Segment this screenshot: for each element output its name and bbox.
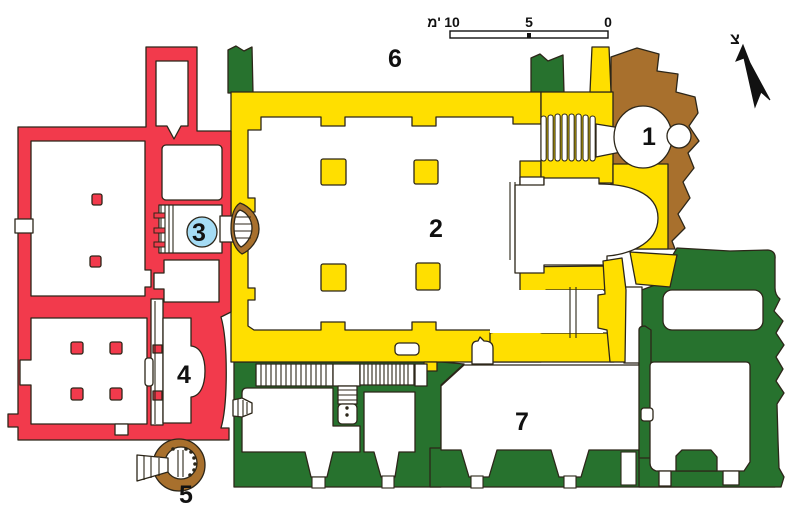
svg-text:7: 7 bbox=[515, 408, 529, 436]
svg-text:מ': מ' bbox=[427, 14, 441, 30]
svg-text:2: 2 bbox=[429, 215, 443, 243]
svg-text:5: 5 bbox=[179, 481, 193, 509]
svg-text:צ: צ bbox=[730, 31, 740, 48]
svg-text:6: 6 bbox=[388, 45, 402, 73]
svg-text:0: 0 bbox=[604, 14, 612, 30]
svg-text:5: 5 bbox=[525, 14, 533, 30]
svg-text:4: 4 bbox=[177, 361, 191, 389]
svg-text:1: 1 bbox=[642, 123, 656, 151]
svg-text:10: 10 bbox=[444, 14, 460, 30]
svg-text:3: 3 bbox=[192, 219, 206, 247]
